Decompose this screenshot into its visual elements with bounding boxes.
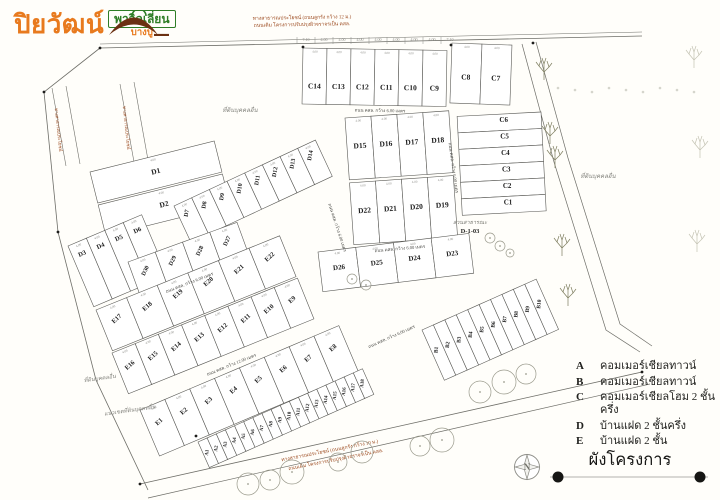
plot-dim: 4.00 <box>360 183 366 187</box>
tree-round-icon <box>280 460 304 484</box>
plot-C9 <box>422 50 447 106</box>
plot-label-A9: A9 <box>278 416 284 423</box>
plot-label-C7: C7 <box>491 73 501 82</box>
plot-label-A8: A8 <box>269 420 275 427</box>
legend-key: A <box>576 360 600 373</box>
plot-label-A15: A15 <box>333 391 339 401</box>
survey-marker <box>195 435 198 438</box>
plot-label-C11: C11 <box>380 83 393 92</box>
plot-label-A11: A11 <box>296 407 302 416</box>
legend-key: E <box>576 435 600 448</box>
survey-marker <box>302 46 305 49</box>
tree-branch-icon <box>536 58 552 80</box>
dimension-text: 7.10 <box>303 37 310 42</box>
tree-branch-icon <box>547 146 563 168</box>
plot-dim: 4.00 <box>384 51 390 55</box>
site-plan-page: C144.00C134.00C124.00C114.00C104.00C94.0… <box>0 0 720 500</box>
legend-key: C <box>576 391 600 416</box>
plot-C13 <box>326 48 351 104</box>
tree-branch-icon <box>689 230 705 252</box>
tree-scatter-icon <box>676 89 679 92</box>
plot-dim: 4.00 <box>360 50 366 54</box>
plot-label-A2: A2 <box>214 445 220 452</box>
tree-scatter-icon <box>693 91 696 94</box>
legend-label: บ้านแฝด 2 ชั้นครึ่ง <box>600 420 720 433</box>
tree-round-icon <box>495 241 505 251</box>
plot-dim: 4.00 <box>433 113 439 117</box>
road-label: ถนน คสล. กว้าง 6.00 เมตร <box>367 324 416 349</box>
plot-label-C3: C3 <box>502 166 511 174</box>
dimension-text: 7.10 <box>447 37 454 42</box>
plot-dim: 4.00 <box>464 45 470 49</box>
plot-label-D17: D17 <box>405 137 419 147</box>
plot-dim: 4.00 <box>447 237 453 242</box>
tree-scatter-icon <box>591 91 594 94</box>
plot-label-A17: A17 <box>351 383 357 393</box>
legend: A คอมเมอร์เชียลทาวน์ B คอมเมอร์เชียลทาวน… <box>576 360 720 451</box>
plot-C14 <box>302 48 327 104</box>
plot-label-C14: C14 <box>308 81 321 90</box>
map-note: ทางสาธารณประโยชน์ <box>54 108 65 152</box>
plot-label-A5: A5 <box>242 433 248 440</box>
legend-row-a: A คอมเมอร์เชียลทาวน์ <box>576 360 720 373</box>
plot-label-A14: A14 <box>324 395 330 405</box>
plot-label-D22: D22 <box>358 205 372 215</box>
dimension-text: 4.00 <box>393 37 400 42</box>
tree-scatter-icon <box>642 91 645 94</box>
plot-dim: 4.00 <box>312 50 318 54</box>
plot-label-C4: C4 <box>501 149 510 157</box>
legend-label: คอมเมอร์เชียลทาวน์ <box>600 360 720 373</box>
plot-dim: 4.00 <box>438 178 444 182</box>
title-dot-right <box>695 472 706 483</box>
plot-dim: 4.00 <box>336 50 342 54</box>
road-line <box>536 42 652 346</box>
block-d-center: D154.00D164.00D174.00D184.00D224.00D214.… <box>345 111 458 245</box>
plot-label-C8: C8 <box>461 72 471 81</box>
block-c-top-right: C84.00C74.00 <box>450 43 512 105</box>
map-note: ที่ดินบุคคลอื่น <box>222 105 258 114</box>
plot-label-A18: A18 <box>360 379 366 389</box>
plot-label-B8: B8 <box>513 311 520 318</box>
plot-label-D23: D23 <box>446 249 459 258</box>
survey-marker <box>43 91 46 94</box>
tree-scatter-icon <box>608 87 611 90</box>
plot-label-A12: A12 <box>305 403 311 413</box>
legend-label: บ้านแฝด 2 ชั้น <box>600 435 720 448</box>
plot-label-B10: B10 <box>536 299 543 309</box>
plot-dim: 4.00 <box>407 115 413 119</box>
road-label: ถนน คสล. กว้าง 6.00 เมตร <box>355 108 406 114</box>
block-b-strip: B1B2B3B4B5B6B7B8B9B10 <box>422 279 559 380</box>
plot-label-C13: C13 <box>332 82 345 91</box>
plot-label-B2: B2 <box>445 341 452 348</box>
plot-label-A3: A3 <box>223 441 229 448</box>
plot-label-B7: B7 <box>502 316 509 323</box>
plot-dim: 4.00 <box>412 180 418 184</box>
plot-label-D20: D20 <box>410 202 424 212</box>
dimension-text: 4.00 <box>411 37 418 42</box>
plot-label-C5: C5 <box>500 133 509 141</box>
tree-scatter-icon <box>557 87 560 90</box>
tree-round-icon <box>506 249 514 257</box>
tree-scatter-icon <box>659 87 662 90</box>
legend-row-e: E บ้านแฝด 2 ชั้น <box>576 435 720 448</box>
plot-dim: 4.00 <box>494 46 500 50</box>
plot-label-C10: C10 <box>404 83 417 92</box>
map-note: ที่ดินบุคคลอื่น <box>580 171 616 180</box>
plot-label-D15: D15 <box>353 141 367 151</box>
plot-dim: 4.00 <box>408 51 414 55</box>
plot-label-A1: A1 <box>205 449 211 456</box>
tree-round-icon <box>485 233 495 243</box>
map-note: ทางสาธารณประโยชน์ <box>122 106 133 150</box>
plot-label-C9: C9 <box>430 84 440 93</box>
legend-label: คอมเมอร์เชียลโฮม 2 ชั้นครึ่ง <box>600 391 720 416</box>
block-c-top: C144.00C134.00C124.00C114.00C104.00C94.0… <box>302 48 447 107</box>
plot-label-B5: B5 <box>479 326 486 333</box>
plot-label-D19: D19 <box>436 200 450 210</box>
plot-label-D26: D26 <box>333 263 346 272</box>
map-note: ที่ดินบุคคลอื่น <box>83 372 116 384</box>
road-line <box>66 86 80 164</box>
tree-round-icon <box>516 364 536 384</box>
tree-round-icon <box>430 428 454 452</box>
tree-branch-icon <box>692 136 708 158</box>
title-dot-left <box>553 472 564 483</box>
plot-label-D9: D9 <box>219 193 226 201</box>
tree-round-icon <box>237 473 259 495</box>
legend-key: B <box>576 376 600 389</box>
plot-label-D8: D8 <box>201 201 208 209</box>
plot-label-A13: A13 <box>314 399 320 409</box>
plot-C12 <box>350 49 375 105</box>
survey-marker <box>99 47 102 50</box>
road-label: ถนน คสล. กว้าง 6.00 เมตร <box>327 203 348 253</box>
plot-label-D18: D18 <box>431 135 445 145</box>
block-c-right: C6C5C4C3C2C1 <box>457 112 546 215</box>
tree-branch-icon <box>554 234 570 256</box>
plot-dim: 4.00 <box>334 251 340 256</box>
plot-dim: 4.00 <box>432 52 438 56</box>
plot-label-D24: D24 <box>408 254 421 263</box>
roof-icon <box>108 10 170 36</box>
plot-label-C6: C6 <box>499 116 508 124</box>
legend-key: D <box>576 420 600 433</box>
dimension-text: 4.00 <box>357 37 364 42</box>
tree-round-icon <box>410 436 430 456</box>
map-note: D-1-03 <box>461 228 481 235</box>
plot-label-A7: A7 <box>260 425 266 432</box>
tree-round-icon <box>469 381 491 403</box>
tree-scatter-icon <box>625 89 628 92</box>
brand-name: ปิยวัฒน์ <box>14 12 104 38</box>
plot-label-B9: B9 <box>525 306 532 313</box>
tree-round-icon <box>260 470 280 490</box>
survey-marker <box>57 231 60 234</box>
plot-label-D21: D21 <box>384 204 398 214</box>
page-title: ผังโครงการ <box>589 450 672 469</box>
legend-row-b: B คอมเมอร์เชียลทาวน์ <box>576 376 720 389</box>
plot-C11 <box>374 49 399 105</box>
plot-label-A6: A6 <box>251 429 257 436</box>
plot-label-C12: C12 <box>356 82 369 91</box>
plot-label-A16: A16 <box>342 387 348 397</box>
tree-branch-icon <box>560 284 576 306</box>
map-note: ทางสาธารณประโยชน์ (ถนนลูกรัง กว้าง 12 ม.… <box>253 13 352 22</box>
dimension-text: 4.00 <box>339 37 346 42</box>
plot-label-D7: D7 <box>184 209 191 217</box>
legend-row-d: D บ้านแฝด 2 ชั้นครึ่ง <box>576 420 720 433</box>
logo: ปิยวัฒน์ พาวิลเลี่ยน บางปู <box>14 10 176 38</box>
tree-round-icon <box>492 370 516 394</box>
tree-branch-icon <box>686 46 702 68</box>
plot-label-B6: B6 <box>491 321 498 328</box>
plot-dim: 4.00 <box>386 181 392 185</box>
plot-label-C2: C2 <box>503 182 512 190</box>
compass-icon: N <box>515 455 540 480</box>
compass-letter: N <box>524 462 531 472</box>
survey-marker <box>532 42 535 45</box>
plot-label-A4: A4 <box>232 437 238 444</box>
plot-label-C1: C1 <box>504 199 513 207</box>
dimension-text: 4.00 <box>429 37 436 42</box>
dimension-text: 4.00 <box>375 37 382 42</box>
plot-label-B4: B4 <box>468 331 475 338</box>
legend-label: คอมเมอร์เชียลทาวน์ <box>600 376 720 389</box>
map-note: สวนสาธารณะ <box>453 220 488 226</box>
plot-label-B3: B3 <box>456 336 463 343</box>
dimension-text: 4.00 <box>321 37 328 42</box>
plot-label-B1: B1 <box>433 346 440 353</box>
tree-scatter-icon <box>574 89 577 92</box>
road-line <box>134 82 148 160</box>
legend-row-c: C คอมเมอร์เชียลโฮม 2 ชั้นครึ่ง <box>576 391 720 416</box>
plot-dim: 4.00 <box>381 117 387 121</box>
plot-label-A10: A10 <box>287 411 293 421</box>
survey-marker <box>450 44 453 47</box>
plot-C10 <box>398 50 423 106</box>
plot-label-D25: D25 <box>370 258 383 267</box>
title-block: ผังโครงการ <box>550 450 708 483</box>
survey-marker <box>139 483 142 486</box>
plot-label-D16: D16 <box>379 139 393 149</box>
plot-dim: 4.00 <box>355 118 361 122</box>
